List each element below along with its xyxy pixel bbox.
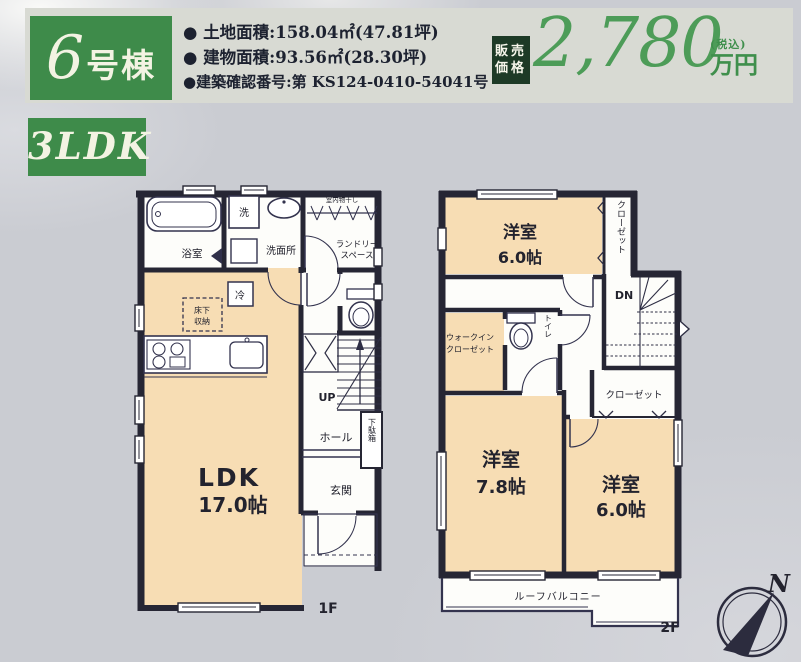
label-up: UP (319, 391, 336, 404)
layout-badge: 3LDK (28, 118, 146, 176)
label-balcony: ルーフバルコニー (514, 591, 601, 603)
unit-number: 6 (46, 28, 84, 88)
label-laundry-2: スペース (341, 251, 374, 261)
label-entrance: 玄関 (330, 483, 352, 497)
price-unit: 万円 (710, 52, 758, 78)
label-room-a-size: 6.0帖 (498, 248, 542, 267)
price-badge-line1: 販売 (492, 43, 530, 60)
label-bath: 浴室 (182, 247, 203, 260)
vanity-cabinet (231, 239, 257, 263)
label-room-a: 洋室 (503, 222, 537, 243)
label-toilet: トイレ (544, 314, 553, 338)
label-closet-b: クローゼット (605, 389, 662, 401)
spec-permit-number: ●建築確認番号:第 KS124-0410-54041号 (183, 70, 503, 95)
price-unit-block: (税込) 万円 (710, 36, 758, 78)
washroom-sink (268, 198, 300, 218)
label-indoor-drying: 室内物干し (326, 195, 359, 204)
label-washroom: 洗面所 (266, 245, 296, 257)
compass: N (703, 553, 801, 662)
floor-plan-1f: 浴室 洗 洗面所 室内物干し ランドリー スペース 冷 床下 収納 LDK 17… (128, 178, 394, 662)
toilet-2f (507, 313, 535, 349)
unit-suffix: 号棟 (86, 29, 156, 87)
label-washer: 洗 (239, 207, 249, 219)
bathtub (147, 197, 221, 231)
price-value: 2,780 (533, 10, 713, 78)
label-laundry-1: ランドリー (336, 240, 379, 250)
label-underfloor-2: 収納 (194, 316, 210, 326)
label-fridge: 冷 (235, 289, 245, 302)
price-badge-line2: 価格 (492, 60, 530, 77)
label-shoebox: 下駄箱 (368, 418, 377, 443)
label-room-b: 洋室 (482, 448, 520, 471)
floor-areas-2f (442, 191, 681, 626)
stair-window-icon (680, 321, 689, 337)
toilet-1f (347, 289, 375, 328)
label-wic-2: クローゼット (446, 344, 494, 354)
label-dn: DN (615, 289, 633, 302)
label-ldk: LDK (198, 463, 260, 492)
floor-label-2f: 2F (660, 620, 679, 636)
label-closet-a: クローゼット (615, 200, 626, 254)
spec-list: ● 土地面積:158.04㎡(47.81坪) ● 建物面積:93.56㎡(28.… (183, 20, 503, 95)
label-wic-1: ウォークイン (446, 333, 494, 342)
compass-north-label: N (767, 569, 791, 598)
flyer-page: 6 号棟 ● 土地面積:158.04㎡(47.81坪) ● 建物面積:93.56… (0, 0, 801, 662)
floor-label-1f: 1F (318, 601, 337, 617)
unit-badge: 6 号棟 (30, 16, 172, 100)
spec-land-area: ● 土地面積:158.04㎡(47.81坪) (183, 20, 503, 45)
label-underfloor-1: 床下 (194, 305, 210, 315)
label-room-c-size: 6.0帖 (596, 499, 646, 521)
floor-plan-2f: 洋室 6.0帖 クローゼット DN ウォークイン クローゼット トイレ クローゼ… (423, 178, 703, 662)
price-badge: 販売 価格 (492, 36, 530, 84)
label-room-b-size: 7.8帖 (476, 476, 526, 498)
label-ldk-size: 17.0帖 (198, 493, 267, 517)
spec-building-area: ● 建物面積:93.56㎡(28.30坪) (183, 45, 503, 70)
label-hall: ホール (320, 431, 353, 444)
label-room-c: 洋室 (602, 473, 640, 496)
kitchen-counter (144, 336, 267, 377)
